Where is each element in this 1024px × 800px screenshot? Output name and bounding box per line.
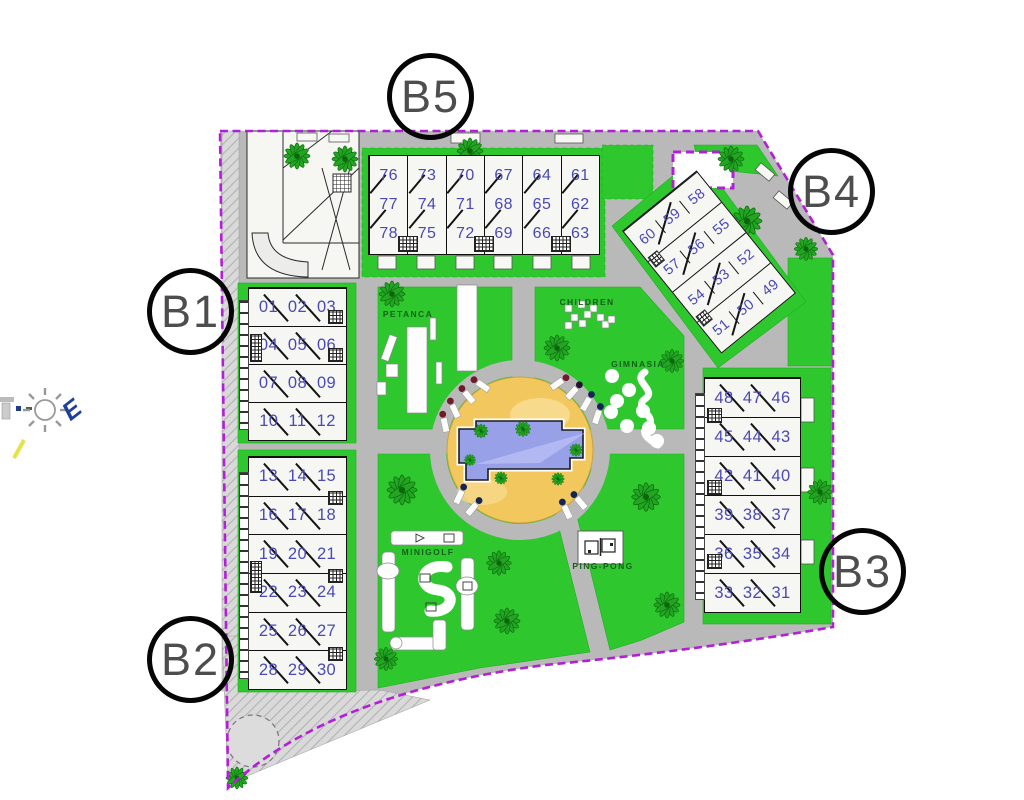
unit-row: 333231 [705, 573, 800, 612]
minigolf-label: MINIGOLF [402, 547, 455, 557]
unit-number-17: 17 [288, 506, 307, 525]
balcony-ticks [695, 393, 705, 600]
block-label: B2 [161, 637, 220, 682]
building-b3: 484746454443424140393837363534333231 [704, 377, 801, 613]
unit-number-52: 52 [728, 242, 763, 274]
children-label: CHILDREN [559, 297, 614, 307]
unit-number-61: 61 [571, 167, 590, 185]
unit-number-09: 09 [317, 374, 336, 393]
unit-number-33: 33 [714, 584, 733, 603]
stairs-hatch [328, 310, 343, 324]
unit-number-44: 44 [743, 428, 762, 447]
block-badge-b5: B5 [387, 53, 474, 140]
unit-number-76: 76 [379, 167, 398, 185]
lamp-fragment [0, 397, 14, 402]
unit-number-26: 26 [288, 622, 307, 641]
stairs-hatch [328, 348, 343, 362]
unit-number-27: 27 [317, 622, 336, 641]
unit-row: 070809 [249, 364, 346, 402]
block-badge-b3: B3 [819, 528, 906, 615]
unit-number-72: 72 [456, 225, 475, 243]
unit-number-21: 21 [317, 545, 336, 564]
petanca-label: PETANCA [383, 309, 433, 319]
stairs-hatch [328, 569, 343, 583]
pingpong-table [578, 531, 623, 564]
unit-number-46: 46 [771, 389, 790, 408]
block-label: B3 [833, 549, 892, 594]
unit-number-74: 74 [418, 196, 437, 214]
balcony-ticks [239, 472, 249, 679]
unit-number-78: 78 [379, 225, 398, 243]
unit-number-40: 40 [771, 467, 790, 486]
block-label: B1 [161, 289, 220, 334]
building-b2: 131415161718192021222324252627282930 [248, 456, 347, 690]
site-plan: 010203040506070809101112 131415161718192… [0, 0, 1024, 800]
stairs-hatch [250, 561, 262, 593]
unit-number-77: 77 [379, 196, 398, 214]
unit-number-30: 30 [317, 661, 336, 680]
unit-number-38: 38 [743, 506, 762, 525]
block-badge-b2: B2 [147, 616, 234, 703]
stairs-hatch [707, 408, 722, 423]
block-label: B4 [802, 169, 861, 214]
unit-number-63: 63 [571, 225, 590, 243]
unit-row: 252627 [249, 612, 346, 651]
gimnasia-label: GIMNASIA [611, 359, 665, 369]
block-badge-b4: B4 [788, 148, 875, 235]
stairs-hatch [707, 480, 722, 495]
unit-number-41: 41 [743, 467, 762, 486]
stairs-hatch [707, 554, 722, 569]
unit-number-29: 29 [288, 661, 307, 680]
unit-number-68: 68 [494, 196, 513, 214]
unit-number-14: 14 [288, 467, 307, 486]
unit-number-45: 45 [714, 428, 733, 447]
unit-row: 393837 [705, 495, 800, 534]
unit-number-10: 10 [259, 412, 278, 431]
unit-number-34: 34 [771, 545, 790, 564]
pingpong-label: PING-PONG [572, 561, 633, 571]
unit-number-64: 64 [533, 167, 552, 185]
unit-number-39: 39 [714, 506, 733, 525]
unit-number-02: 02 [288, 298, 307, 317]
unit-number-32: 32 [743, 584, 762, 603]
unit-number-58: 58 [679, 181, 714, 213]
unit-number-23: 23 [288, 583, 307, 602]
stairs-hatch [551, 236, 571, 252]
unit-number-07: 07 [259, 374, 278, 393]
unit-number-48: 48 [714, 389, 733, 408]
unit-number-75: 75 [418, 225, 437, 243]
stairs-hatch [398, 236, 418, 252]
unit-number-15: 15 [317, 467, 336, 486]
unit-number-71: 71 [456, 196, 475, 214]
unit-number-37: 37 [771, 506, 790, 525]
unit-number-62: 62 [571, 196, 590, 214]
unit-number-11: 11 [289, 412, 307, 431]
unit-row: 131415 [249, 457, 346, 496]
unit-number-05: 05 [288, 336, 307, 355]
stairs-hatch [474, 236, 494, 252]
unit-number-65: 65 [533, 196, 552, 214]
unit-number-47: 47 [743, 389, 762, 408]
unit-number-08: 08 [288, 374, 307, 393]
unit-number-25: 25 [259, 622, 278, 641]
unit-number-18: 18 [317, 506, 336, 525]
unit-row: 101112 [249, 402, 346, 440]
balcony-ticks [239, 300, 249, 430]
unit-number-28: 28 [259, 661, 278, 680]
unit-row: 192021 [249, 534, 346, 573]
unit-number-20: 20 [288, 545, 307, 564]
unit-number-73: 73 [418, 167, 437, 185]
stairs-hatch [328, 491, 343, 505]
unit-number-16: 16 [259, 506, 278, 525]
unit-number-12: 12 [317, 412, 336, 431]
stairs-hatch [250, 334, 262, 362]
unit-number-67: 67 [494, 167, 513, 185]
unit-number-70: 70 [456, 167, 475, 185]
unit-number-43: 43 [771, 428, 790, 447]
unit-number-13: 13 [259, 467, 278, 486]
unit-number-24: 24 [317, 583, 336, 602]
unit-number-66: 66 [533, 225, 552, 243]
unit-number-01: 01 [259, 298, 278, 317]
compass [0, 388, 67, 458]
block-badge-b1: B1 [147, 268, 234, 355]
yellow-tick [14, 440, 24, 458]
stairs-hatch [328, 647, 343, 661]
building-b1: 010203040506070809101112 [248, 287, 347, 441]
unit-number-35: 35 [743, 545, 762, 564]
unit-number-69: 69 [494, 225, 513, 243]
unit-number-31: 31 [771, 584, 790, 603]
building-b5: 767778737475707172676869646566616263 [368, 155, 600, 255]
unit-number-55: 55 [704, 211, 739, 243]
block-label: B5 [401, 74, 460, 119]
unit-number-49: 49 [753, 272, 788, 304]
